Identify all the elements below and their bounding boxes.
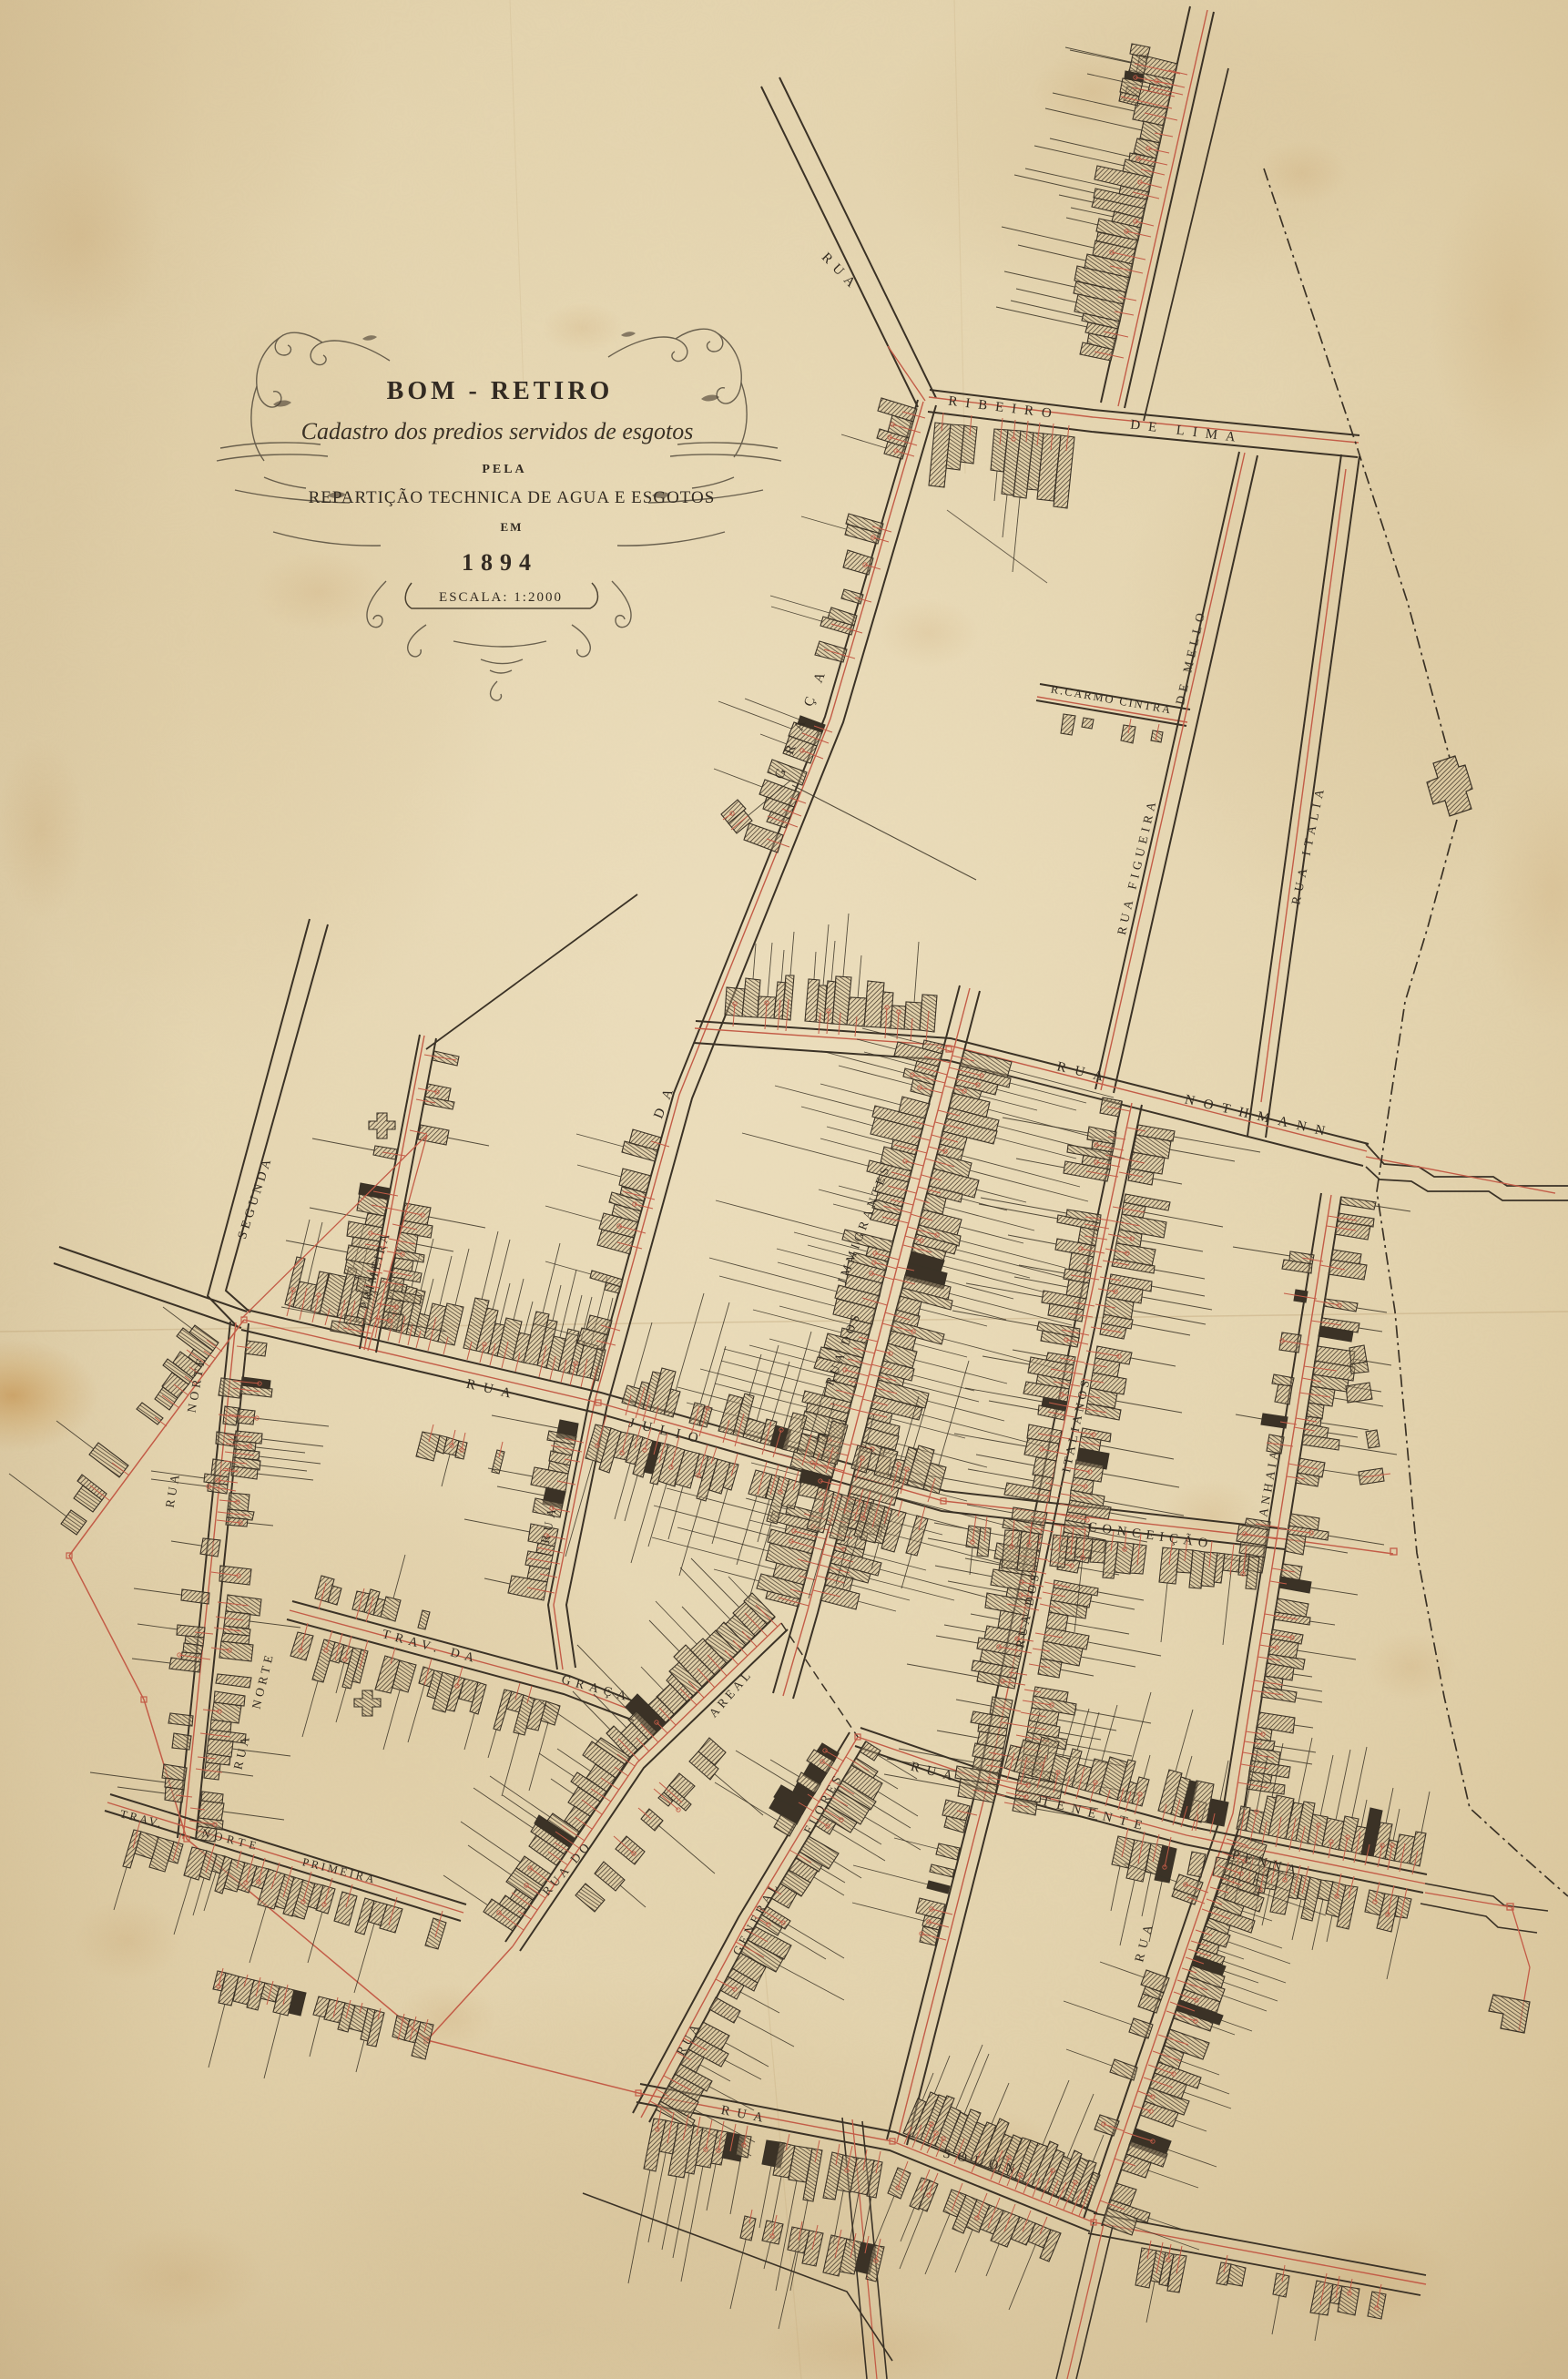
svg-text:REPARTIÇÃO TECHNICA DE AGUA E: REPARTIÇÃO TECHNICA DE AGUA E ESGOTOS: [309, 487, 716, 507]
svg-text:1894: 1894: [462, 549, 538, 576]
svg-text:PELA: PELA: [482, 463, 526, 476]
svg-text:EM: EM: [501, 520, 524, 534]
svg-text:ESCALA: 1:2000: ESCALA: 1:2000: [439, 590, 563, 605]
svg-text:BOM - RETIRO: BOM - RETIRO: [387, 377, 614, 405]
svg-text:Cadastro dos predios servidos: Cadastro dos predios servidos de esgotos: [301, 418, 694, 444]
